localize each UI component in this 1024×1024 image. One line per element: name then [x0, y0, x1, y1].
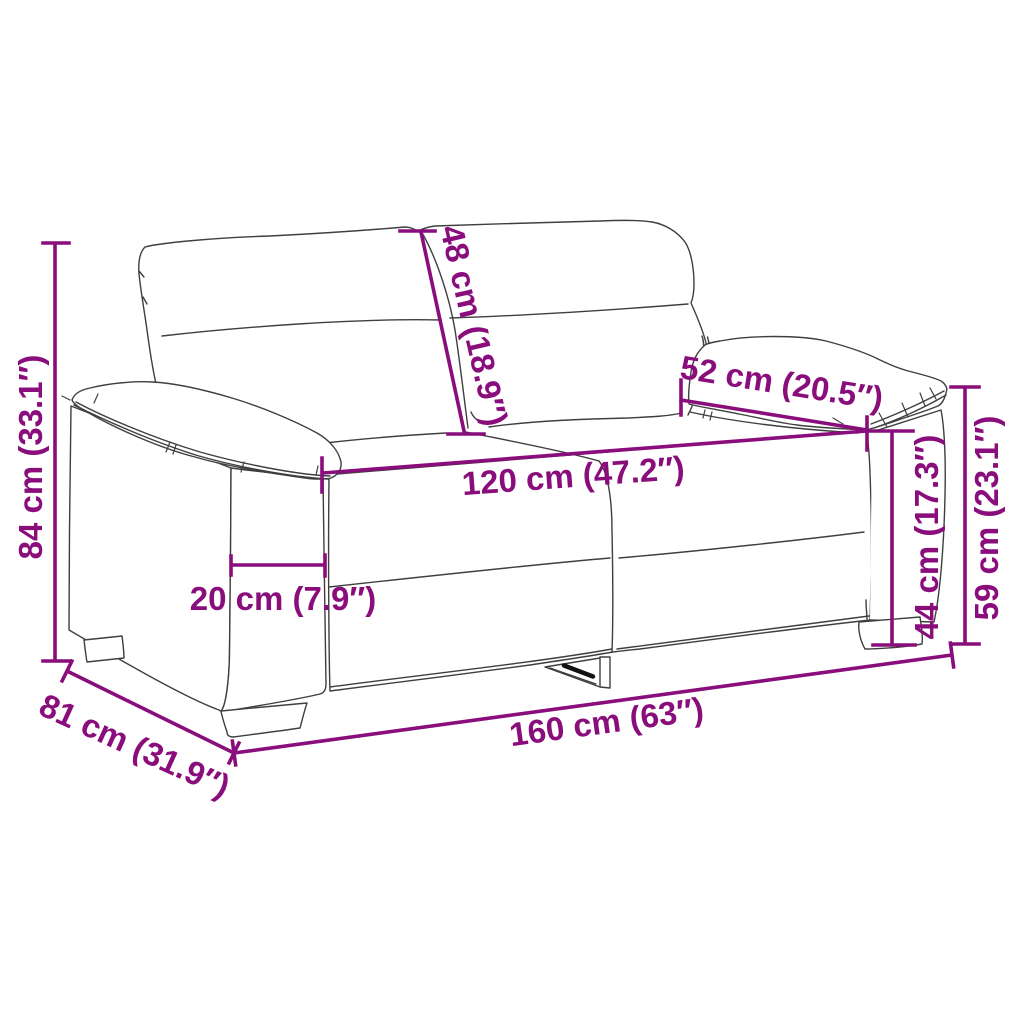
svg-text:84 cm (33.1″): 84 cm (33.1″) — [12, 355, 49, 560]
svg-text:20 cm (7.9″): 20 cm (7.9″) — [190, 580, 376, 617]
svg-text:44 cm (17.3″): 44 cm (17.3″) — [908, 435, 945, 640]
svg-text:160 cm (63″): 160 cm (63″) — [507, 690, 706, 753]
svg-text:59 cm (23.1″): 59 cm (23.1″) — [968, 416, 1005, 621]
